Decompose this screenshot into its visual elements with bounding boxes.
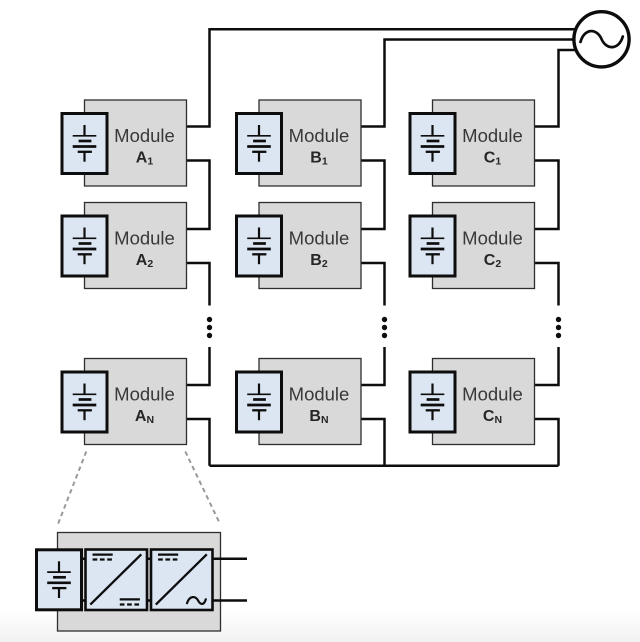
svg-text:Module: Module (462, 125, 523, 146)
svg-text:Module: Module (289, 125, 350, 146)
svg-text:Module: Module (114, 383, 175, 404)
svg-text:Module: Module (114, 227, 175, 248)
svg-text:Module: Module (114, 125, 175, 146)
svg-text:Module: Module (289, 383, 350, 404)
svg-text:Module: Module (289, 227, 350, 248)
svg-text:Module: Module (462, 383, 523, 404)
svg-text:Module: Module (462, 227, 523, 248)
